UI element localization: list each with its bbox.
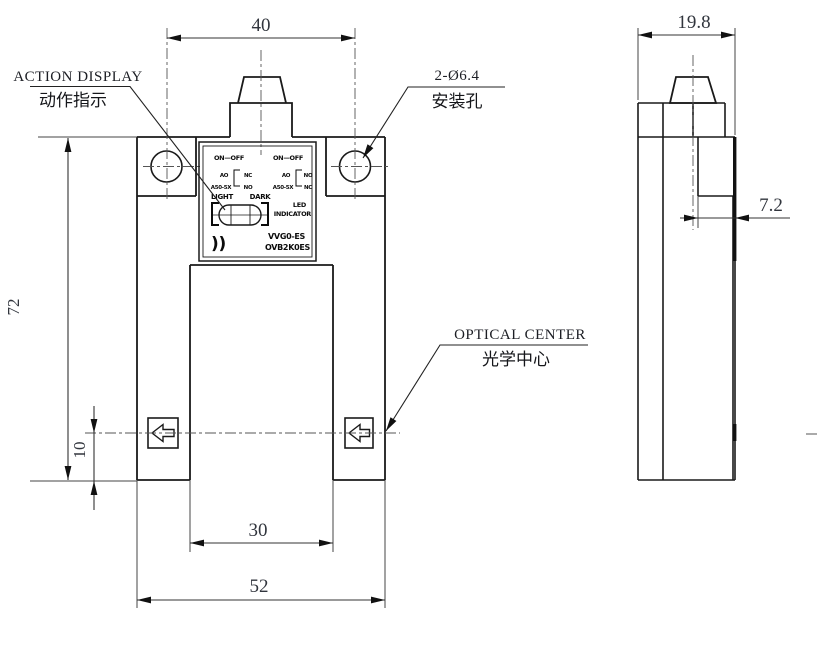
plate-diagram-right-nc: NC [304, 185, 312, 191]
dim-face-depth-text: 7.2 [759, 195, 783, 216]
side-view [638, 55, 820, 480]
optical-center-label-zh: 光学中心 [482, 350, 550, 369]
name-plate: ON—OFF ON—OFF AO A50-5X NC NO AO A50-5X … [199, 142, 316, 261]
dim-width: 52 [137, 480, 385, 608]
dim-depth-text: 19.8 [677, 12, 710, 33]
leader-arrow [386, 417, 396, 431]
plate-right-line1: LED [293, 201, 307, 209]
mounting-hole-label-en: 2-Ø6.4 [434, 68, 479, 84]
plate-diagram-right-no: NO [304, 173, 313, 179]
plate-model-line1: VVG0-ES [268, 232, 306, 241]
dim-slot-width-text: 30 [249, 520, 268, 541]
plate-row1-right: ON—OFF [273, 154, 303, 162]
front-view [85, 28, 400, 480]
action-display-label-zh: 动作指示 [39, 91, 107, 110]
plate-diagram-left-side: A50-5X [211, 185, 233, 191]
plate-model-line2: OVB2K0ES [265, 243, 311, 252]
side-lens-strip [733, 424, 736, 441]
plate-diagram-right-bracket [296, 170, 302, 186]
plate-right-line2: INDICATOR [274, 210, 312, 218]
dim-width-text: 52 [250, 576, 269, 597]
arcs-mark: )) [211, 234, 226, 254]
action-display-label-en: ACTION DISPLAY [13, 69, 142, 85]
front-body-outline [137, 137, 385, 480]
side-body-outline [638, 103, 735, 480]
plate-diagram-left-no: NO [244, 185, 253, 191]
dim-optical-offset: 10 [70, 406, 97, 510]
callout-action-display: ACTION DISPLAY 动作指示 [13, 69, 225, 210]
dimension-drawing: ON—OFF ON—OFF AO A50-5X NC NO AO A50-5X … [0, 0, 820, 660]
plate-row1-left: ON—OFF [214, 154, 244, 162]
leader-arrow [363, 144, 373, 158]
plate-diagram-left-nc: NC [244, 173, 252, 179]
dim-hole-pitch: 40 [167, 15, 355, 41]
plate-diagram-left-bracket [234, 170, 240, 186]
dim-optical-offset-text: 10 [70, 442, 89, 459]
dim-height: 72 [4, 137, 137, 481]
dim-height-text: 72 [4, 299, 23, 316]
plate-diagram-left-top: AO [220, 173, 229, 179]
dim-slot-width: 30 [190, 480, 333, 552]
dim-depth: 19.8 [638, 12, 735, 135]
drawing-sheet: ON—OFF ON—OFF AO A50-5X NC NO AO A50-5X … [0, 0, 820, 660]
extension-lines [190, 480, 333, 552]
indicator-bracket-right [261, 203, 268, 225]
plate-diagram-right-top: AO [282, 173, 291, 179]
mounting-hole-label-zh: 安装孔 [432, 92, 483, 111]
centerlines-side [693, 55, 820, 434]
indicator-bracket-left [212, 203, 219, 225]
dim-hole-pitch-text: 40 [252, 15, 271, 36]
side-face-strip-top [733, 137, 736, 261]
plate-row3-word2: DARK [250, 193, 272, 201]
callout-optical-center: OPTICAL CENTER 光学中心 [386, 327, 588, 431]
plate-diagram-right-side: A50-5X [273, 185, 295, 191]
optical-center-label-en: OPTICAL CENTER [454, 327, 586, 343]
extension-lines [30, 137, 137, 481]
extension-lines [638, 28, 735, 135]
